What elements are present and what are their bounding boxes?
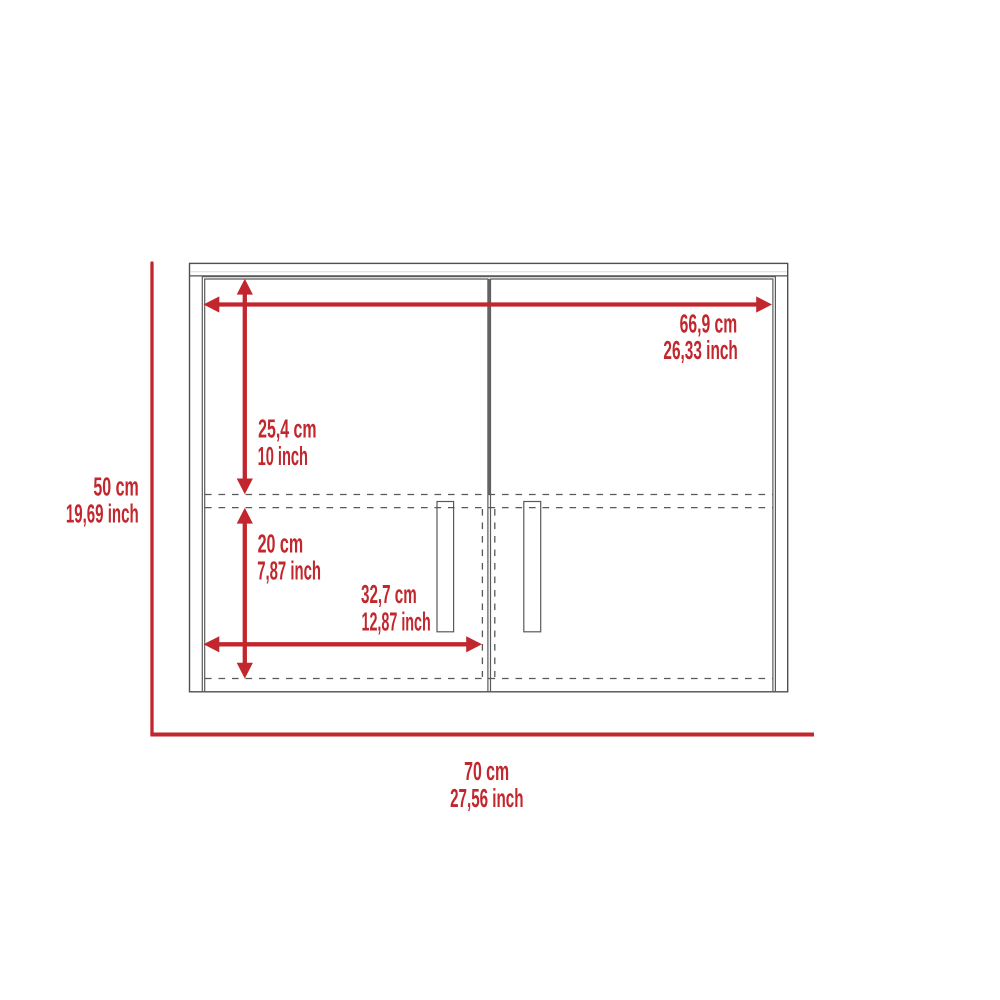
svg-text:19,69 inch: 19,69 inch xyxy=(66,501,139,529)
svg-text:25,4 cm: 25,4 cm xyxy=(258,415,316,444)
svg-text:70 cm: 70 cm xyxy=(464,758,509,786)
svg-text:7,87 inch: 7,87 inch xyxy=(257,557,321,585)
svg-text:26,33 inch: 26,33 inch xyxy=(663,337,737,365)
svg-text:10 inch: 10 inch xyxy=(258,443,308,471)
svg-text:20 cm: 20 cm xyxy=(258,530,303,559)
svg-text:50 cm: 50 cm xyxy=(93,473,138,502)
svg-text:12,87 inch: 12,87 inch xyxy=(362,609,431,637)
svg-text:27,56 inch: 27,56 inch xyxy=(450,785,523,813)
svg-text:66,9 cm: 66,9 cm xyxy=(680,311,738,339)
svg-text:32,7 cm: 32,7 cm xyxy=(361,581,417,609)
